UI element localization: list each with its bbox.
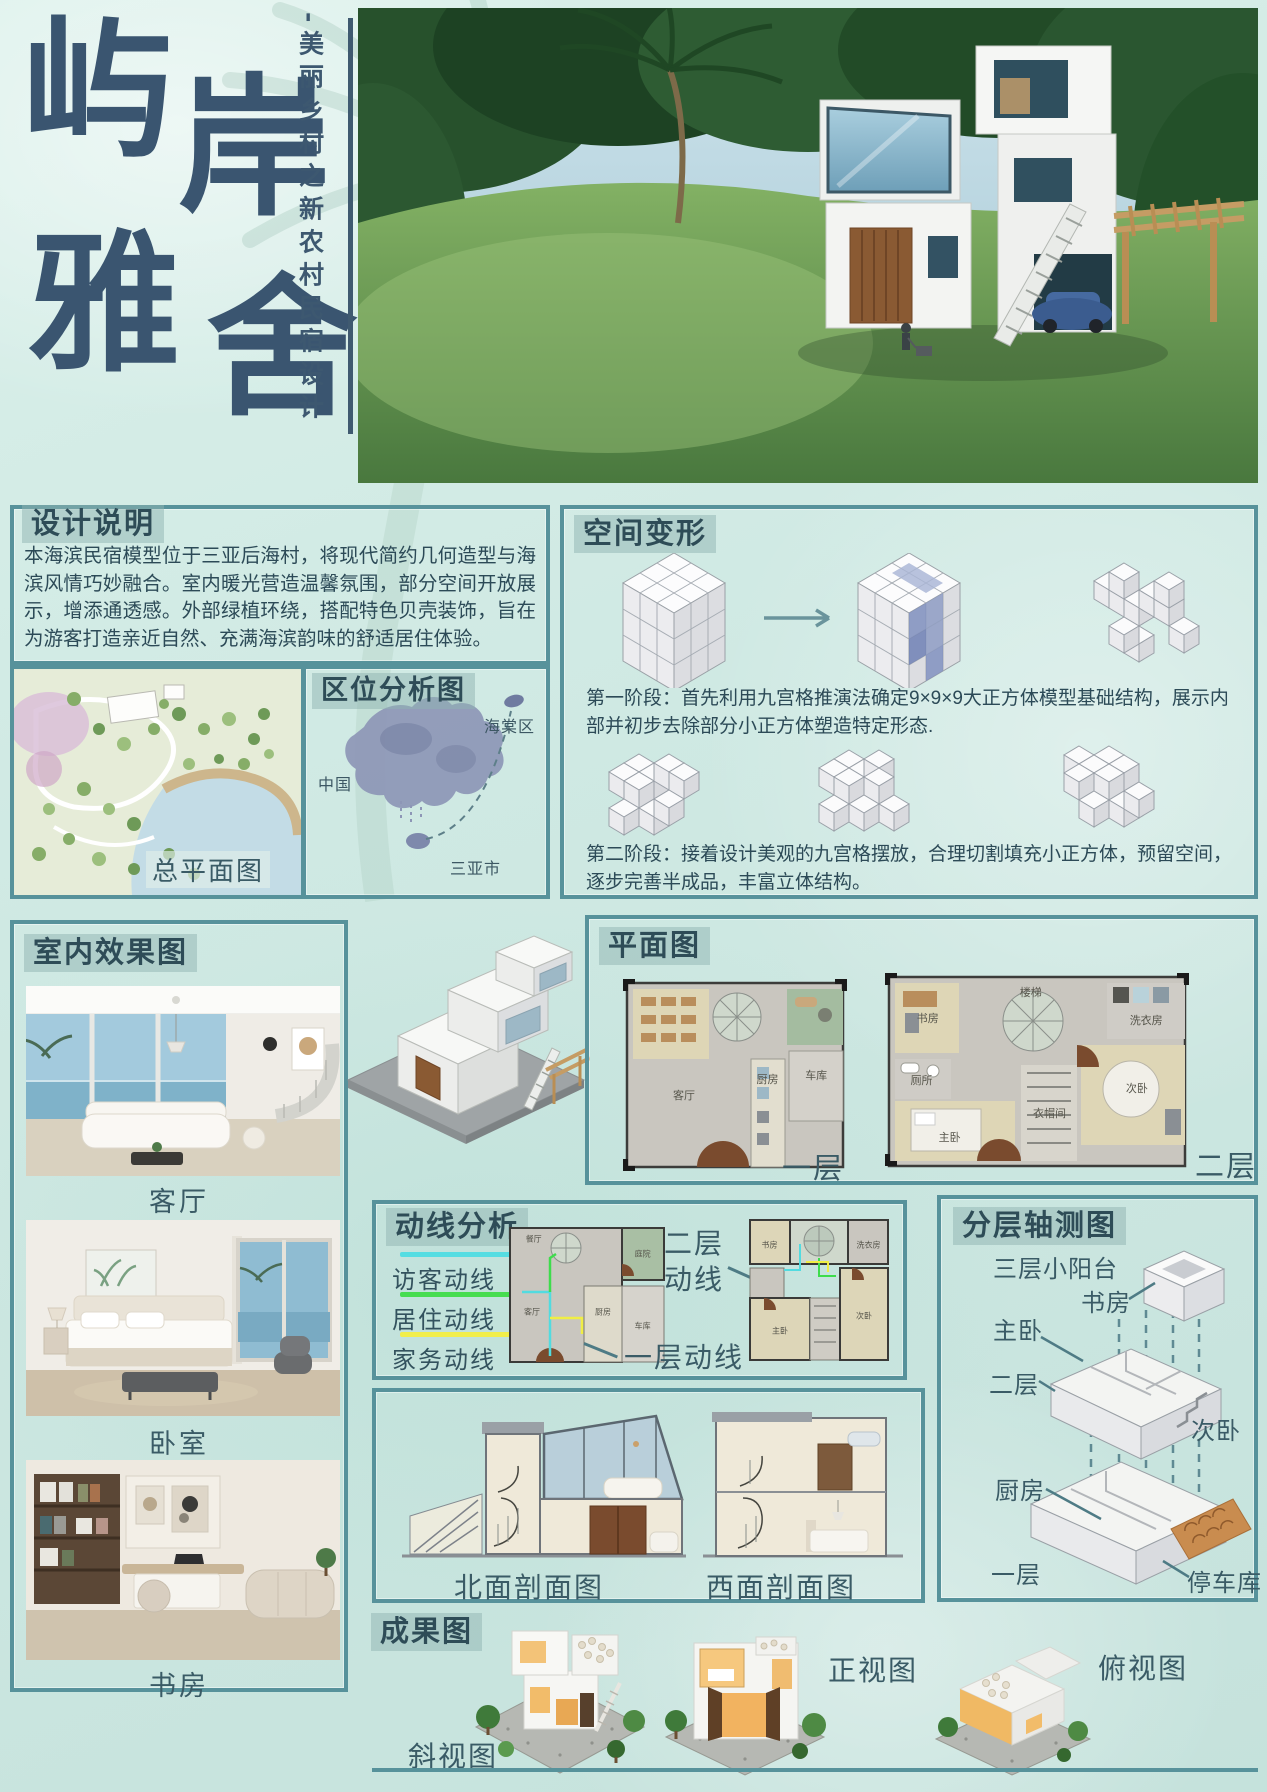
axon-floor2-label: 二层: [989, 1365, 1039, 1400]
room-second: 次卧: [1126, 1080, 1148, 1096]
stage2-text: 第二阶段：接着设计美观的九宫格摆放，合理切割填充小正方体，预留空间，逐步完善半成…: [586, 841, 1234, 896]
district-label: 海棠区: [484, 713, 535, 737]
cube-cluster-2c: [1064, 746, 1154, 827]
floor1-label: 一层: [782, 1145, 844, 1187]
north-section-label: 北面剖面图: [454, 1566, 604, 1606]
living-room-photo: [26, 986, 340, 1176]
results-area: 成果图: [360, 1605, 1258, 1792]
location-panel: 区位分析图 海棠区 中国 三亚市: [302, 665, 550, 899]
front-view-label: 正视图: [828, 1649, 918, 1689]
space-transform-panel: 空间变形: [560, 505, 1258, 899]
floor-plans-panel: 平面图 客厅 厨房 车库 一层: [585, 915, 1258, 1185]
layers-axon-panel: 分层轴测图 三层小阳台 书房 主卧 二层 次卧 厨房 一层 停车库: [937, 1195, 1258, 1602]
cube-cluster-2b: [819, 750, 909, 831]
room-closet: 衣帽间: [1033, 1105, 1066, 1121]
visitor-line-swatch: [400, 1252, 512, 1257]
mini2-second: 次卧: [856, 1310, 872, 1321]
axon-floor1-label: 一层: [991, 1555, 1041, 1590]
axon-second-label: 次卧: [1191, 1411, 1241, 1446]
room-kitchen: 厨房: [756, 1071, 778, 1087]
west-section-label: 西面剖面图: [706, 1566, 856, 1606]
circulation-panel: 动线分析 访客动线 居住动线 家务动线 餐厅 庭院 客厅 厨房: [372, 1200, 907, 1380]
resident-line-label: 居住动线: [392, 1300, 496, 1335]
housework-line-label: 家务动线: [392, 1340, 496, 1375]
mini1-living: 客厅: [524, 1306, 540, 1317]
study-caption: 书房: [14, 1664, 344, 1703]
room-toilet: 厕所: [911, 1072, 933, 1088]
room-laundry: 洗衣房: [1130, 1012, 1163, 1028]
title-char-1: 屿: [22, 14, 174, 166]
floor2-circulation-plan: 书房 洗衣房 主卧 次卧: [744, 1214, 894, 1368]
study-photo: [26, 1460, 340, 1660]
space-transform-title: 空间变形: [574, 515, 716, 553]
hero-render: [358, 8, 1258, 483]
cube-stage2-figure: [579, 741, 1239, 847]
title-char-4: 舍: [206, 272, 358, 424]
visitor-line-label: 访客动线: [392, 1260, 496, 1295]
master-plan-panel: 总平面图: [10, 665, 305, 899]
header-divider: [348, 18, 353, 434]
floor2-circulation-label: 二层动线: [664, 1226, 732, 1299]
north-section-image: [394, 1404, 694, 1564]
room-stairs: 楼梯: [1020, 984, 1042, 1000]
master-plan-label: 总平面图: [146, 851, 270, 888]
cube-cluster-2a: [609, 754, 699, 835]
top-view-label: 俯视图: [1098, 1647, 1188, 1687]
floor-plans-title: 平面图: [599, 927, 710, 965]
room-living: 客厅: [673, 1087, 695, 1103]
title-char-3: 雅: [28, 228, 180, 380]
country-label: 中国: [318, 771, 352, 795]
axon-kitchen-label: 厨房: [995, 1471, 1045, 1506]
top-model-image: [930, 1627, 1095, 1789]
interior-panel: 室内效果图: [10, 920, 348, 1692]
results-title: 成果图: [371, 1613, 482, 1651]
house-axon-model-image: [340, 928, 590, 1156]
header-subtitle: -美丽乡村之新农村民宿设计: [296, 12, 324, 452]
city-label: 三亚市: [450, 855, 501, 879]
living-room-caption: 客厅: [14, 1180, 344, 1219]
front-model-image: [660, 1617, 830, 1789]
poster: 屿 岸 雅 舍 -美丽乡村之新农村民宿设计: [0, 0, 1267, 1792]
housework-line-swatch: [400, 1332, 512, 1337]
axon-master-label: 主卧: [993, 1311, 1043, 1346]
hero-render-image: [358, 8, 1258, 483]
bedroom-caption: 卧室: [14, 1422, 344, 1461]
mini2-master: 主卧: [772, 1326, 788, 1337]
floor2-label: 二层: [1195, 1143, 1257, 1185]
room-master: 主卧: [939, 1129, 961, 1145]
design-notes-title: 设计说明: [22, 505, 164, 543]
cube-cluster-1: [1094, 563, 1199, 662]
mini1-garage: 车库: [635, 1321, 651, 1332]
resident-line-swatch: [400, 1292, 512, 1297]
west-section-image: [698, 1404, 908, 1564]
axon-garage-label: 停车库: [1187, 1563, 1262, 1598]
axon-balcony-label: 三层小阳台: [993, 1249, 1118, 1284]
room-garage: 车库: [805, 1067, 827, 1083]
mini1-kitchen: 厨房: [595, 1306, 611, 1317]
room-study2: 书房: [917, 1010, 939, 1026]
bottom-divider: [372, 1768, 1258, 1772]
floor2-plan: 书房 楼梯 洗衣房 厕所 衣帽间 主卧 次卧: [881, 969, 1193, 1174]
floor1-circulation-label: 一层动线: [624, 1336, 744, 1376]
mini1-dining: 餐厅: [526, 1234, 542, 1245]
layers-axon-title: 分层轴测图: [953, 1207, 1126, 1245]
cube-stage1-figure: [579, 553, 1239, 688]
location-title: 区位分析图: [312, 673, 475, 709]
interior-title: 室内效果图: [24, 934, 197, 972]
mini1-patio: 庭院: [635, 1248, 651, 1259]
mini2-study: 书房: [762, 1239, 778, 1250]
axon-study-label: 书房: [1081, 1283, 1131, 1318]
sections-panel: 北面剖面图 西面剖面图: [372, 1388, 925, 1603]
design-notes-panel: 设计说明 本海滨民宿模型位于三亚后海村，将现代简约几何造型与海滨风情巧妙融合。室…: [10, 505, 550, 665]
stage1-text: 第一阶段：首先利用九宫格推演法确定9×9×9大正方体模型基础结构，展示内部并初步…: [586, 685, 1234, 740]
mini2-laundry: 洗衣房: [857, 1239, 881, 1250]
bedroom-photo: [26, 1220, 340, 1416]
design-notes-body: 本海滨民宿模型位于三亚后海村，将现代简约几何造型与海滨风情巧妙融合。室内暖光营造…: [24, 543, 536, 654]
